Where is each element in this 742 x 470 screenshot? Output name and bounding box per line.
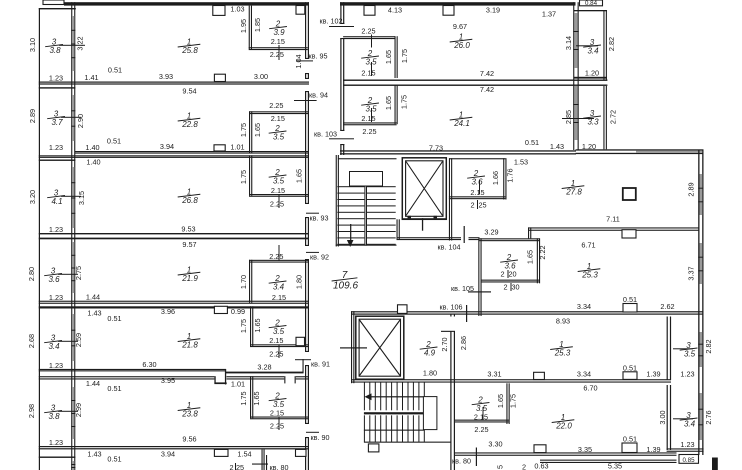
svg-text:кв. 102: кв. 102 [320,17,343,26]
svg-text:3.6: 3.6 [471,177,483,186]
svg-text:2.82: 2.82 [704,339,713,353]
svg-text:1.65: 1.65 [384,50,393,64]
svg-text:3.28: 3.28 [257,363,271,372]
svg-text:2.22: 2.22 [538,245,547,259]
svg-text:кв. 95: кв. 95 [309,52,328,61]
svg-text:1.23: 1.23 [49,225,63,234]
svg-text:3.5: 3.5 [684,349,696,358]
svg-text:кв. 90: кв. 90 [311,433,330,442]
svg-text:20: 20 [508,270,516,279]
svg-text:1.65: 1.65 [526,250,535,264]
svg-text:0.51: 0.51 [107,137,121,146]
svg-text:1.75: 1.75 [239,170,248,184]
svg-text:1.75: 1.75 [509,394,518,408]
svg-text:0.84: 0.84 [585,0,598,7]
svg-text:25.3: 25.3 [581,270,598,279]
svg-text:0.51: 0.51 [525,138,539,147]
svg-text:1.37: 1.37 [542,10,556,19]
svg-text:3.4: 3.4 [48,342,60,351]
svg-text:2.98: 2.98 [27,404,36,418]
svg-text:2.25: 2.25 [474,425,488,434]
svg-text:1.23: 1.23 [49,361,63,370]
svg-text:6.30: 6.30 [142,360,156,369]
svg-text:1.04: 1.04 [294,54,303,68]
svg-text:1.95: 1.95 [239,19,248,33]
svg-text:0.51: 0.51 [107,314,121,323]
svg-text:109.6: 109.6 [333,281,358,292]
svg-text:1.01: 1.01 [230,142,244,151]
svg-text:1.44: 1.44 [86,379,100,388]
svg-text:2.75: 2.75 [74,266,83,280]
svg-text:2: 2 [229,463,233,470]
svg-text:23.8: 23.8 [181,409,198,418]
svg-text:2.15: 2.15 [361,114,375,123]
svg-text:0.85: 0.85 [682,457,695,464]
svg-text:8.93: 8.93 [556,317,570,326]
svg-text:кв. 104: кв. 104 [438,243,461,252]
svg-text:5.35: 5.35 [608,462,622,470]
svg-text:1.65: 1.65 [253,123,262,137]
svg-text:1.40: 1.40 [85,143,99,152]
svg-text:25: 25 [236,463,244,470]
svg-text:6.71: 6.71 [581,241,595,250]
svg-text:1.75: 1.75 [400,49,409,63]
svg-text:2.70: 2.70 [440,337,449,351]
svg-text:1.70: 1.70 [239,275,248,289]
svg-text:2.86: 2.86 [459,336,468,350]
svg-text:1.65: 1.65 [384,96,393,110]
svg-text:3.8: 3.8 [49,46,61,55]
svg-text:3.4: 3.4 [587,46,599,55]
svg-text:2.15: 2.15 [271,186,285,195]
svg-text:1.65: 1.65 [253,318,262,332]
svg-text:9.54: 9.54 [182,87,196,96]
svg-text:1.20: 1.20 [582,142,596,151]
svg-text:1.65: 1.65 [295,169,304,183]
svg-text:1.41: 1.41 [84,73,98,82]
svg-text:1.66: 1.66 [491,171,500,185]
svg-text:2.99: 2.99 [74,403,83,417]
svg-text:0.51: 0.51 [107,455,121,464]
svg-text:3.20: 3.20 [28,190,37,204]
svg-text:1.20: 1.20 [585,69,599,78]
svg-text:3.5: 3.5 [273,176,285,185]
svg-text:3.00: 3.00 [254,72,268,81]
svg-text:3.93: 3.93 [159,72,173,81]
svg-text:1.75: 1.75 [239,123,248,137]
svg-text:2.15: 2.15 [272,293,286,302]
svg-text:9.67: 9.67 [453,22,467,31]
svg-text:2.80: 2.80 [27,267,36,281]
svg-text:1.23: 1.23 [49,74,63,83]
svg-text:3.37: 3.37 [687,266,696,280]
svg-text:5: 5 [496,465,505,469]
svg-text:1.53: 1.53 [514,158,528,167]
svg-text:кв. 105: кв. 105 [451,284,474,293]
svg-text:1.39: 1.39 [646,445,660,454]
svg-text:1.23: 1.23 [680,370,694,379]
svg-text:2: 2 [522,463,526,470]
svg-text:2.72: 2.72 [609,110,618,124]
svg-text:3.22: 3.22 [76,36,85,50]
svg-text:3.35: 3.35 [578,445,592,454]
svg-text:кв. 93: кв. 93 [310,214,329,223]
svg-text:1.85: 1.85 [253,18,262,32]
svg-text:0.99: 0.99 [231,307,245,316]
svg-text:кв. 91: кв. 91 [311,360,330,369]
svg-text:2.15: 2.15 [361,69,375,78]
svg-text:1.43: 1.43 [87,309,101,318]
svg-text:3.31: 3.31 [487,370,501,379]
svg-text:26.0: 26.0 [453,41,470,50]
svg-text:2: 2 [470,201,474,210]
svg-text:2.25: 2.25 [270,200,284,209]
svg-text:25.8: 25.8 [181,46,198,55]
svg-text:3.29: 3.29 [484,228,498,237]
svg-text:0.51: 0.51 [623,434,637,443]
svg-text:9.57: 9.57 [182,240,196,249]
svg-text:1.65: 1.65 [496,394,505,408]
svg-text:0.63: 0.63 [534,462,548,470]
svg-text:3.94: 3.94 [160,142,174,151]
svg-text:4.13: 4.13 [388,6,402,15]
svg-text:30: 30 [511,283,519,292]
svg-text:3.6: 3.6 [48,275,60,284]
svg-text:3.94: 3.94 [161,450,175,459]
svg-text:кв. 80: кв. 80 [452,457,471,466]
svg-text:1.75: 1.75 [239,319,248,333]
svg-text:22.0: 22.0 [555,421,572,430]
svg-text:3.5: 3.5 [273,132,285,141]
svg-text:2.89: 2.89 [28,109,37,123]
svg-text:21.9: 21.9 [181,274,198,283]
svg-text:9.56: 9.56 [182,435,196,444]
svg-text:1.65: 1.65 [252,391,261,405]
svg-text:2.15: 2.15 [271,114,285,123]
svg-text:7.73: 7.73 [429,144,443,153]
svg-text:кв. 94: кв. 94 [309,91,328,100]
svg-text:3.96: 3.96 [161,307,175,316]
svg-text:1.23: 1.23 [49,293,63,302]
svg-text:2.15: 2.15 [271,37,285,46]
svg-text:0.51: 0.51 [107,384,121,393]
svg-text:3.19: 3.19 [486,6,500,15]
svg-text:2.15: 2.15 [270,408,284,417]
svg-text:1.44: 1.44 [86,293,100,302]
svg-text:3.95: 3.95 [161,376,175,385]
svg-text:1.03: 1.03 [230,5,244,14]
svg-text:3.8: 3.8 [48,412,60,421]
svg-text:1.80: 1.80 [423,369,437,378]
svg-text:2.85: 2.85 [564,110,573,124]
svg-text:2: 2 [503,283,507,292]
svg-text:2.15: 2.15 [470,188,484,197]
svg-text:0.51: 0.51 [108,66,122,75]
svg-text:2.68: 2.68 [27,334,36,348]
svg-text:1.39: 1.39 [646,370,660,379]
svg-text:1.76: 1.76 [506,168,515,182]
svg-text:24.1: 24.1 [453,119,470,128]
svg-text:2.82: 2.82 [607,37,616,51]
svg-text:1.80: 1.80 [295,275,304,289]
svg-text:22.8: 22.8 [181,120,198,129]
svg-text:3.14: 3.14 [564,36,573,50]
svg-text:кв. 92: кв. 92 [310,253,329,262]
svg-text:7.42: 7.42 [480,85,494,94]
svg-text:2.90: 2.90 [76,114,85,128]
svg-text:1.43: 1.43 [87,450,101,459]
svg-text:3.9: 3.9 [273,28,285,37]
svg-text:27.8: 27.8 [565,187,582,196]
svg-text:2.62: 2.62 [660,302,674,311]
svg-text:0.51: 0.51 [623,295,637,304]
svg-text:3.7: 3.7 [51,118,63,127]
svg-text:1.23: 1.23 [680,440,694,449]
svg-text:21.8: 21.8 [181,340,198,349]
svg-text:3.34: 3.34 [577,302,591,311]
svg-text:2.25: 2.25 [269,252,283,261]
svg-text:2.59: 2.59 [74,333,83,347]
svg-text:2.76: 2.76 [704,410,713,424]
svg-text:1.01: 1.01 [231,380,245,389]
svg-text:2.15: 2.15 [269,336,283,345]
svg-text:2.89: 2.89 [687,182,696,196]
svg-text:26.8: 26.8 [181,196,198,205]
svg-text:2.25: 2.25 [269,350,283,359]
svg-text:1.23: 1.23 [49,143,63,152]
svg-text:3.15: 3.15 [77,191,86,205]
svg-text:2.25: 2.25 [269,101,283,110]
svg-text:1.43: 1.43 [550,142,564,151]
svg-text:3.4: 3.4 [273,282,285,291]
svg-text:2.25: 2.25 [270,422,284,431]
svg-text:4.1: 4.1 [51,197,62,206]
svg-text:0.51: 0.51 [623,364,637,373]
svg-text:9.53: 9.53 [181,225,195,234]
svg-text:кв. 106: кв. 106 [440,303,463,312]
svg-text:3.00: 3.00 [658,410,667,424]
svg-text:1.75: 1.75 [239,391,248,405]
svg-text:кв. 80: кв. 80 [270,463,289,470]
svg-text:кв. 103: кв. 103 [314,130,337,139]
svg-text:1.75: 1.75 [400,95,409,109]
svg-text:7.11: 7.11 [606,215,620,224]
svg-text:2.25: 2.25 [270,50,284,59]
svg-text:3.30: 3.30 [488,440,502,449]
svg-text:1.40: 1.40 [86,158,100,167]
svg-text:3.5: 3.5 [273,327,285,336]
svg-text:25.3: 25.3 [554,348,571,357]
svg-text:7.42: 7.42 [480,69,494,78]
svg-text:2: 2 [500,270,504,279]
svg-text:2.25: 2.25 [362,127,376,136]
svg-text:4.9: 4.9 [424,348,436,357]
svg-text:3.34: 3.34 [577,370,591,379]
svg-text:1.54: 1.54 [237,450,251,459]
svg-text:6.70: 6.70 [583,384,597,393]
svg-text:25: 25 [478,201,486,210]
svg-text:3.10: 3.10 [28,38,37,52]
svg-text:2.15: 2.15 [474,412,488,421]
svg-text:2.25: 2.25 [361,27,375,36]
svg-text:3.4: 3.4 [684,419,696,428]
svg-text:1.23: 1.23 [49,438,63,447]
